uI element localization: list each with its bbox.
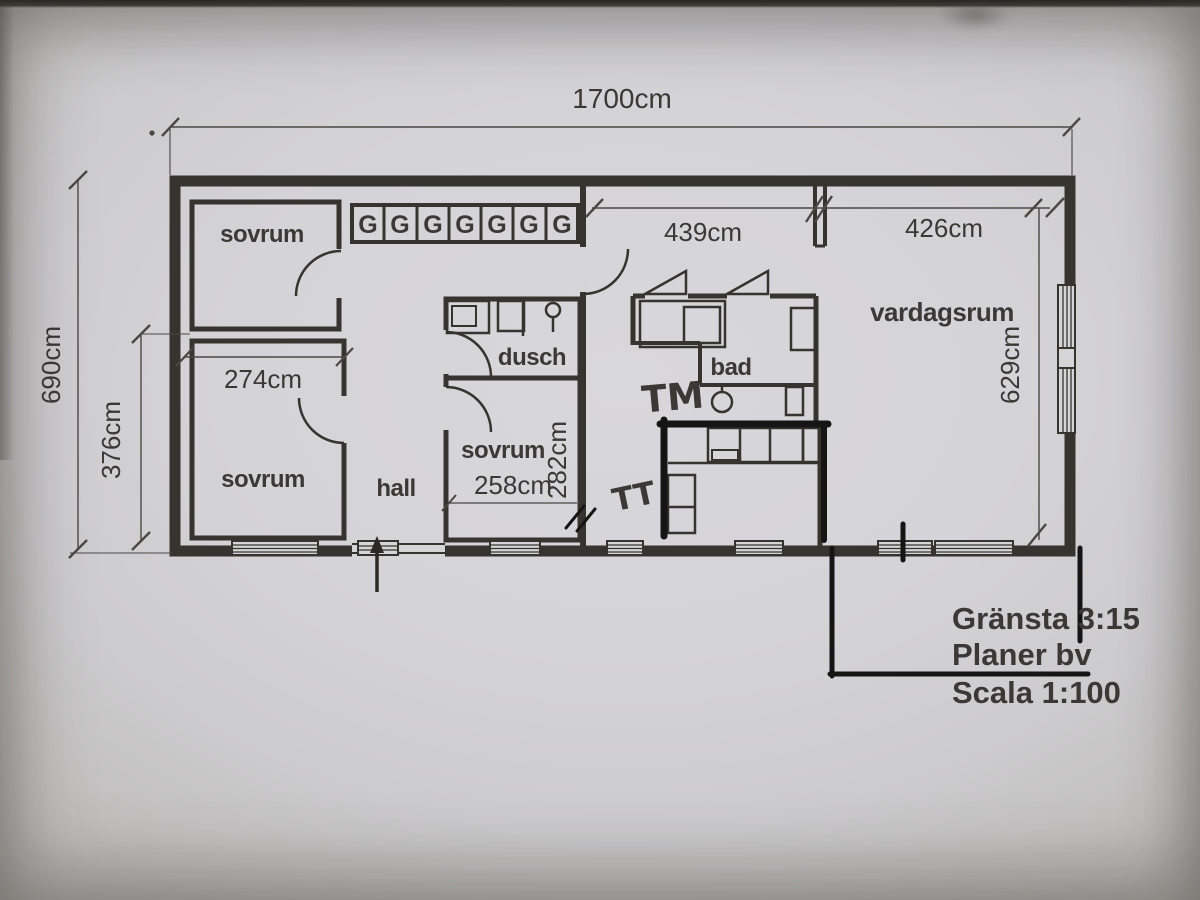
shower-bedroom-block — [440, 299, 580, 540]
right-wall-windows — [1058, 285, 1075, 433]
room-label-bedroom-mid: sovrum — [461, 437, 545, 464]
dim-left-lower: 376cm — [96, 401, 126, 479]
door-swing-triangle — [645, 271, 686, 294]
dim-left-room: 274cm — [224, 364, 302, 394]
room-label-hall: hall — [376, 475, 415, 502]
dim-overall-height: 690cm — [36, 326, 66, 404]
photo-smudge — [938, 0, 1012, 30]
kitchen-counters — [668, 428, 820, 533]
closet-letter: G — [519, 211, 538, 239]
window — [1058, 285, 1075, 348]
room-label-bedroom-nw: sovrum — [220, 221, 304, 248]
closet-letter: G — [358, 211, 377, 239]
closet-letter: G — [487, 211, 506, 239]
window — [490, 541, 540, 555]
window — [935, 541, 1013, 555]
dim-mid-section: 439cm — [664, 217, 742, 247]
dim-mid-bedroom-width: 258cm — [474, 470, 552, 500]
closet-letter: G — [390, 211, 409, 239]
handwritten-washer-mark: TM — [640, 373, 706, 421]
title-block-line3: Scala 1:100 — [952, 675, 1121, 710]
toilet — [712, 392, 732, 412]
dim-living-depth: 629cm — [995, 326, 1025, 404]
cabinet-small — [786, 387, 803, 415]
window-mullion — [1058, 348, 1075, 368]
window — [607, 541, 643, 555]
pen-texts: TM TT — [609, 373, 705, 519]
window — [735, 541, 783, 555]
room-label-living: vardagsrum — [870, 297, 1014, 327]
wardrobe-letters: G G G G G G G — [358, 211, 571, 239]
dim-mid-bedroom-depth: 282cm — [542, 421, 572, 499]
handwritten-dryer-mark: TT — [609, 475, 659, 519]
closet-letter: G — [423, 211, 442, 239]
title-block: Gränsta 3:15 Planer bv Scala 1:100 — [952, 601, 1140, 710]
door-swing-triangle — [727, 271, 768, 294]
closet-letter: G — [455, 211, 474, 239]
floor-plan-photo: G G G G G G G — [0, 0, 1200, 900]
photo-edge-top — [0, 0, 1200, 8]
title-block-line2: Planer bv — [952, 637, 1092, 672]
room-label-bedroom-sw: sovrum — [221, 466, 305, 493]
room-label-bath: bad — [710, 354, 751, 381]
floor-plan-drawing: G G G G G G G — [0, 0, 1200, 900]
title-block-line1: Gränsta 3:15 — [952, 601, 1140, 636]
closet-letter: G — [552, 211, 571, 239]
dim-living-section: 426cm — [905, 213, 983, 243]
cabinet — [791, 308, 816, 350]
window — [1058, 368, 1075, 433]
shower-fixtures — [447, 299, 560, 336]
photo-shadow-left — [0, 0, 14, 460]
dim-overall-width: 1700cm — [572, 83, 672, 114]
window — [232, 541, 318, 555]
room-label-shower: dusch — [498, 344, 566, 371]
